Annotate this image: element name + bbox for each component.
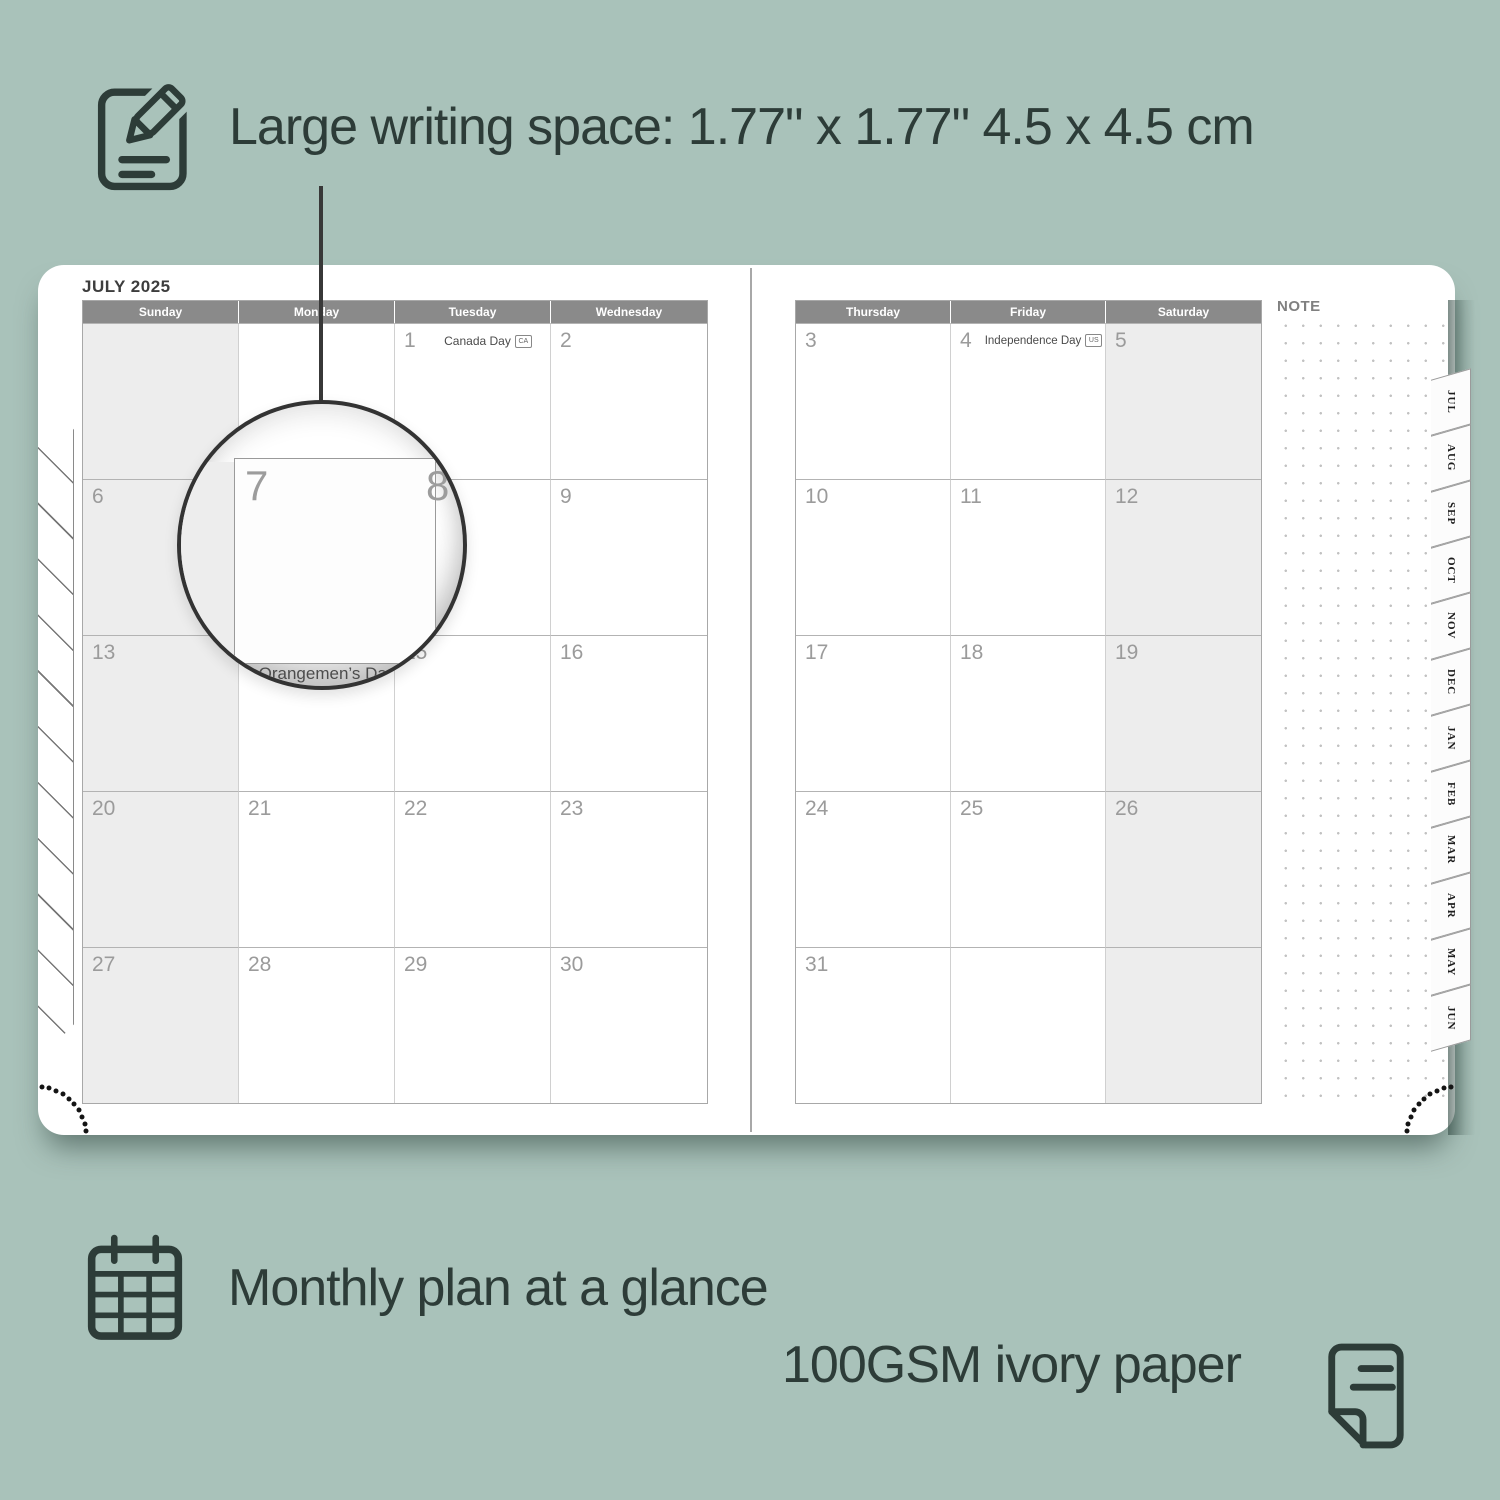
weekday-header: Tuesday — [395, 301, 551, 323]
day-cell: 12 — [1106, 479, 1261, 635]
weekday-header: Sunday — [83, 301, 239, 323]
note-label: NOTE — [1277, 298, 1321, 315]
left-edge-tab-stack — [38, 393, 74, 1061]
stitch-dot — [1421, 1096, 1426, 1101]
stitch-dot — [1412, 1107, 1417, 1112]
stitch-dot — [1449, 1085, 1454, 1090]
stitch-dot — [54, 1088, 59, 1093]
paper-caption: 100GSM ivory paper — [782, 1335, 1241, 1395]
paper-sheet-icon — [1320, 1338, 1410, 1459]
calendar-grid-icon — [86, 1232, 184, 1349]
notepad-pencil-icon — [88, 70, 204, 197]
product-image: Large writing space: 1.77" x 1.77" 4.5 x… — [0, 0, 1500, 1500]
stitch-dot — [1406, 1121, 1411, 1126]
month-tab: JUN — [1431, 984, 1471, 1051]
day-cell: 5 — [1106, 323, 1261, 479]
monthly-plan-caption: Monthly plan at a glance — [228, 1258, 768, 1318]
holiday-label: Independence Day US — [985, 334, 1102, 347]
stitch-dot — [76, 1107, 81, 1112]
magnified-day-7: 7 — [245, 462, 268, 510]
day-cell — [1106, 947, 1261, 1103]
magnifier-circle: 7 8 4 Orangemen’s Day (N.L.) CA — [177, 400, 467, 690]
day-cell: 3 — [796, 323, 951, 479]
us-flag-badge: US — [1085, 334, 1102, 347]
day-cell: 2 — [551, 323, 707, 479]
stitch-dot — [72, 1101, 77, 1106]
day-cell-independence-day: 4 Independence Day US — [951, 323, 1106, 479]
month-tabs: JULAUGSEPOCTNOVDECJANFEBMARAPRMAYJUN — [1431, 374, 1473, 1046]
day-cell: 11 — [951, 479, 1106, 635]
stitch-dot — [47, 1086, 52, 1091]
calendar-grid-right: Thursday Friday Saturday 3 4 Independenc… — [795, 300, 1262, 1104]
writing-space-caption: Large writing space: 1.77" x 1.77" 4.5 x… — [229, 97, 1254, 157]
magnified-day-8: 8 — [426, 462, 449, 510]
holiday-label: Canada Day CA — [429, 334, 547, 348]
day-cell: 26 — [1106, 791, 1261, 947]
day-cell: 23 — [551, 791, 707, 947]
planner-spread: JULY 2025 Sunday Monday Tuesday Wednesda… — [38, 265, 1455, 1135]
stitch-dot — [1408, 1114, 1413, 1119]
day-cell: 18 — [951, 635, 1106, 791]
weekday-header: Thursday — [796, 301, 951, 323]
stitch-dot — [67, 1096, 72, 1101]
day-cell: 16 — [551, 635, 707, 791]
spread-spine — [750, 268, 752, 1132]
weekday-header: Wednesday — [551, 301, 707, 323]
stitch-dot — [83, 1129, 88, 1134]
stitch-dot — [1427, 1092, 1432, 1097]
day-cell: 28 — [239, 947, 395, 1103]
stitch-dot — [39, 1085, 44, 1090]
day-cell: 24 — [796, 791, 951, 947]
day-cell — [951, 947, 1106, 1103]
canada-flag-badge: CA — [515, 335, 532, 348]
stitch-dot — [80, 1114, 85, 1119]
day-cell: 17 — [796, 635, 951, 791]
day-cell: 9 — [551, 479, 707, 635]
magnified-sunday-shading — [181, 462, 235, 688]
note-dot-grid — [1277, 317, 1449, 1109]
day-cell: 21 — [239, 791, 395, 947]
day-cell: 27 — [83, 947, 239, 1103]
day-cell: 20 — [83, 791, 239, 947]
day-cell: 19 — [1106, 635, 1261, 791]
callout-line — [319, 186, 323, 402]
stitch-dot — [1416, 1101, 1421, 1106]
day-cell: 25 — [951, 791, 1106, 947]
stitch-dot — [1405, 1129, 1410, 1134]
day-cell: 10 — [796, 479, 951, 635]
stitch-dot — [1441, 1086, 1446, 1091]
weekday-header: Friday — [951, 301, 1106, 323]
stitch-dot — [1434, 1088, 1439, 1093]
weekday-header: Monday — [239, 301, 395, 323]
stitch-dot — [82, 1121, 87, 1126]
weekday-header: Saturday — [1106, 301, 1261, 323]
stitch-dot — [61, 1092, 66, 1097]
day-cell: 29 — [395, 947, 551, 1103]
day-cell: 22 — [395, 791, 551, 947]
day-cell: 30 — [551, 947, 707, 1103]
day-cell: 31 — [796, 947, 951, 1103]
month-title: JULY 2025 — [82, 277, 171, 297]
